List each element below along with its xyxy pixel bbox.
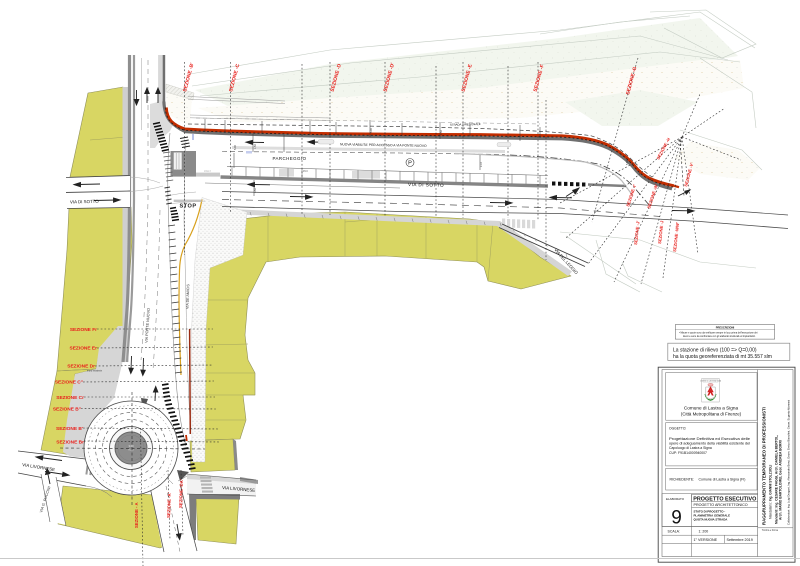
svg-text:OGGETTO:: OGGETTO: bbox=[669, 426, 686, 430]
svg-text:1° VERSIONE: 1° VERSIONE bbox=[694, 538, 718, 542]
svg-text:45.0: 45.0 bbox=[303, 170, 308, 173]
svg-text:SEZIONE B': SEZIONE B' bbox=[56, 426, 83, 432]
svg-text:SEZIONE B'': SEZIONE B'' bbox=[53, 407, 81, 413]
svg-text:1.50: 1.50 bbox=[440, 130, 443, 135]
svg-text:VIA DE AMICIS: VIA DE AMICIS bbox=[186, 284, 191, 309]
svg-text:PROGETTO ARCHITETTONICO: PROGETTO ARCHITETTONICO bbox=[694, 503, 748, 507]
svg-text:(Città Metropolitana di Firenz: (Città Metropolitana di Firenze) bbox=[681, 412, 742, 417]
svg-text:SEZIONE -WW': SEZIONE -WW' bbox=[672, 222, 680, 252]
svg-text:Capoluogo di Lastra a Signa: Capoluogo di Lastra a Signa bbox=[669, 446, 712, 450]
svg-text:PARCHEGGIO: PARCHEGGIO bbox=[273, 156, 307, 161]
svg-text:Timbro e Firma: Timbro e Firma bbox=[762, 529, 779, 532]
svg-text:ha la quota georeferenziata di: ha la quota georeferenziata di mt 35.557… bbox=[673, 354, 772, 360]
svg-text:SEZIONE - A: SEZIONE - A bbox=[134, 502, 139, 528]
svg-text:SEZIONE Dr: SEZIONE Dr bbox=[67, 364, 95, 370]
svg-text:SEZIONE Er: SEZIONE Er bbox=[70, 346, 98, 352]
svg-text:2.10: 2.10 bbox=[480, 162, 483, 167]
svg-text:CUP: F91B14000940007: CUP: F91B14000940007 bbox=[669, 451, 707, 455]
svg-text:SEZIONE -A': SEZIONE -A' bbox=[166, 492, 172, 518]
svg-text:VIA PONTE NUOVO: VIA PONTE NUOVO bbox=[145, 308, 151, 343]
svg-text:3.50: 3.50 bbox=[254, 188, 257, 193]
svg-text:VIA DI SOTTO: VIA DI SOTTO bbox=[408, 182, 444, 188]
svg-text:Comune di Lastra a Signa: Comune di Lastra a Signa bbox=[684, 406, 739, 411]
svg-text:3.00: 3.00 bbox=[128, 444, 134, 448]
svg-text:SEZIONE Fr: SEZIONE Fr bbox=[70, 327, 97, 333]
svg-text:opere di adeguamento della via: opere di adeguamento della viabilità esi… bbox=[669, 442, 750, 446]
svg-text:SEZIONE -H: SEZIONE -H bbox=[655, 137, 671, 161]
svg-text:SEZIONE C'': SEZIONE C'' bbox=[55, 380, 83, 386]
svg-text:NUOVA VIABILITA' PER ACCESSO A: NUOVA VIABILITA' PER ACCESSO A VIA PONTE… bbox=[340, 142, 427, 148]
svg-text:5.50: 5.50 bbox=[626, 160, 629, 165]
svg-text:SEZIONE Cr: SEZIONE Cr bbox=[56, 395, 84, 401]
svg-text:SEZIONE -V': SEZIONE -V' bbox=[683, 162, 694, 187]
svg-text:1.50: 1.50 bbox=[254, 144, 257, 149]
svg-text:Collaboratori: Ing. Luigi Drag: Collaboratori: Ing. Luigi Dragoni, Ing. … bbox=[787, 399, 791, 525]
svg-text:SEZIONE -B': SEZIONE -B' bbox=[182, 62, 196, 92]
svg-text:STOP: STOP bbox=[180, 204, 197, 210]
svg-text:Settembre 2019: Settembre 2019 bbox=[727, 538, 753, 542]
svg-text:STRADA DIREZIONALE: STRADA DIREZIONALE bbox=[450, 122, 481, 127]
svg-text:• Misure e quote sono da verif: • Misure e quote sono da verificare semp… bbox=[679, 332, 758, 335]
svg-text:Progettazione Definitiva ed: Progettazione Definitiva ed Esecutiva de… bbox=[669, 437, 750, 441]
svg-text:SEZIONE -DA': SEZIONE -DA' bbox=[178, 479, 184, 508]
svg-text:Arch. MARIO BARTOLOMEI, Geol.: Arch. MARIO BARTOLOMEI, Geol. ANDREA BOR… bbox=[779, 440, 783, 520]
svg-text:La stazione di rilievo (100 =>: La stazione di rilievo (100 => Q=0,00) bbox=[673, 347, 757, 353]
svg-text:QUOTA NUOVA STRADA: QUOTA NUOVA STRADA bbox=[694, 518, 729, 522]
svg-text:PRESCRIZIONI: PRESCRIZIONI bbox=[716, 325, 735, 329]
svg-text:RAGGRUPPAMENTO TEMPORANEO DI P: RAGGRUPPAMENTO TEMPORANEO DI PROFESSIONI… bbox=[762, 407, 767, 525]
svg-text:SEZIONE Br: SEZIONE Br bbox=[56, 439, 84, 445]
svg-text:VIA DI SOTTO: VIA DI SOTTO bbox=[70, 199, 99, 205]
svg-text:SCALA:: SCALA: bbox=[668, 530, 680, 534]
svg-text:RICHIEDENTE:: RICHIEDENTE: bbox=[670, 477, 695, 481]
svg-text:5.00: 5.00 bbox=[234, 145, 237, 150]
svg-text:Comune di Lastra a Signa (FI): Comune di Lastra a Signa (FI) bbox=[699, 477, 746, 481]
svg-text:R=14: R=14 bbox=[128, 450, 134, 452]
svg-text:1: 200: 1: 200 bbox=[699, 530, 709, 534]
svg-text:ELABORATO: ELABORATO bbox=[666, 497, 685, 501]
svg-text:5.00: 5.00 bbox=[370, 128, 373, 133]
svg-text:lavori e sono da confrontare c: lavori e sono da confrontare con gli ela… bbox=[683, 335, 756, 338]
svg-text:Mandatario: Ing. GIANNI STOLZU: Mandatario: Ing. GIANNI STOLZUOLI bbox=[769, 465, 773, 519]
svg-text:SEZIONE -J': SEZIONE -J' bbox=[633, 220, 641, 245]
svg-text:P: P bbox=[408, 161, 412, 167]
svg-text:muro esistente: muro esistente bbox=[87, 370, 103, 373]
svg-text:PROGETTO ESECUTIVO: PROGETTO ESECUTIVO bbox=[693, 497, 756, 503]
svg-text:JOLLY: JOLLY bbox=[204, 170, 212, 173]
svg-text:9: 9 bbox=[671, 508, 682, 529]
